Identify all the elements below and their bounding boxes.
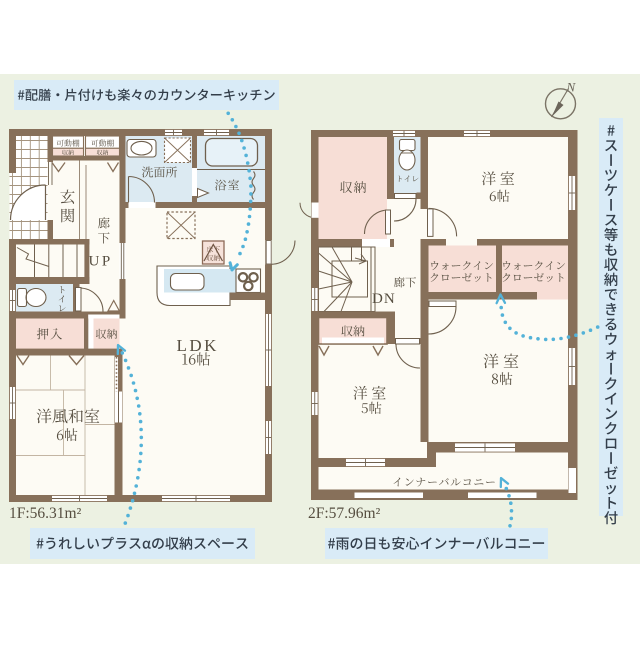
svg-text:UP: UP [89, 254, 113, 270]
svg-text:LDK: LDK [177, 336, 219, 355]
svg-text:1F:56.31m²: 1F:56.31m² [9, 505, 82, 522]
svg-text:N: N [566, 80, 577, 95]
svg-text:2F:57.96m²: 2F:57.96m² [308, 505, 381, 522]
svg-text:DN: DN [372, 291, 396, 307]
